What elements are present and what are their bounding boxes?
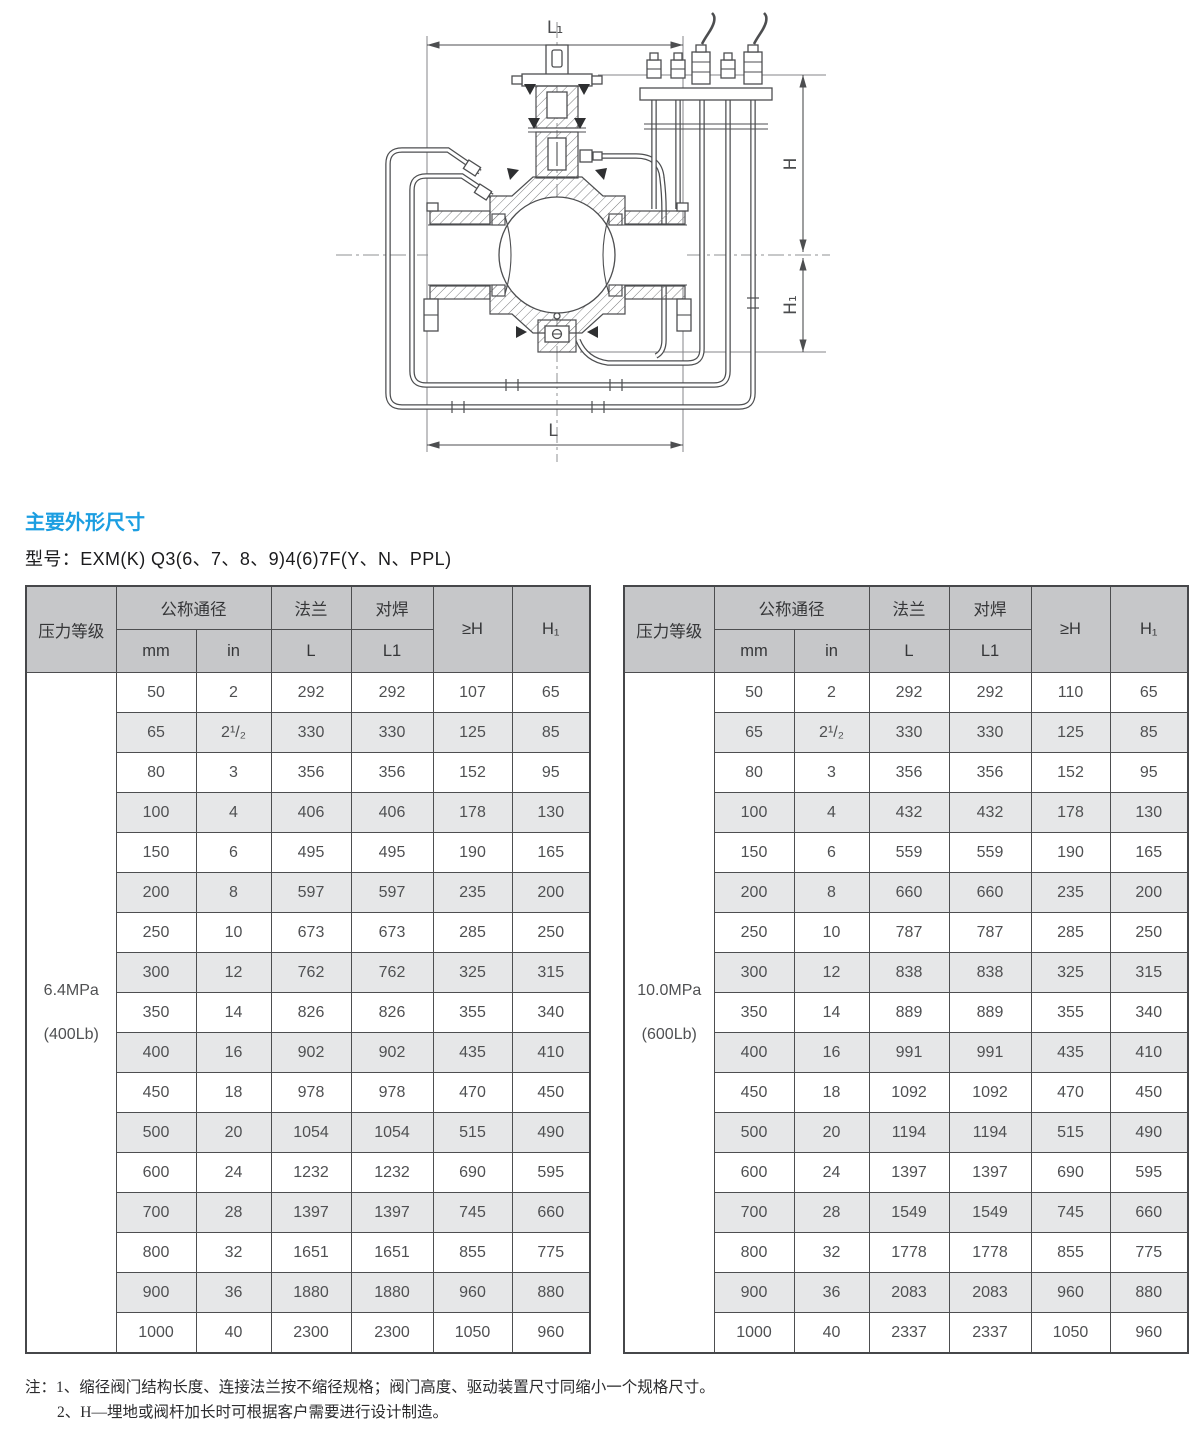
dimension-cell: 340	[512, 993, 590, 1033]
dimension-cell: 355	[433, 993, 512, 1033]
dimension-cell: 515	[433, 1113, 512, 1153]
dimension-cell: 32	[196, 1233, 271, 1273]
dimension-cell: 235	[1031, 873, 1110, 913]
dimension-cell: 450	[714, 1073, 794, 1113]
dimension-cell: 745	[433, 1193, 512, 1233]
dimension-cell: 2083	[869, 1273, 949, 1313]
dimension-cell: 889	[869, 993, 949, 1033]
dimension-cell: 315	[512, 953, 590, 993]
dimension-cell: 292	[869, 673, 949, 713]
dimension-cell: 900	[116, 1273, 196, 1313]
dimension-cell: 991	[869, 1033, 949, 1073]
dimension-cell: 20	[794, 1113, 869, 1153]
dimension-cell: 6	[794, 833, 869, 873]
dim-label-l: L	[548, 421, 558, 441]
valve-technical-drawing: L₁ L H H₁	[0, 0, 1200, 492]
dimension-cell: 600	[116, 1153, 196, 1193]
dimension-cell: 150	[714, 833, 794, 873]
dimension-cell: 2337	[949, 1313, 1031, 1354]
dimension-cell: 36	[794, 1273, 869, 1313]
dimension-cell: 515	[1031, 1113, 1110, 1153]
dimension-cell: 2083	[949, 1273, 1031, 1313]
dimension-cell: 65	[512, 673, 590, 713]
dimension-cell: 250	[714, 913, 794, 953]
header-butt-weld: 对焊	[351, 586, 433, 630]
dimension-cell: 660	[949, 873, 1031, 913]
dimension-cell: 356	[271, 753, 351, 793]
dimension-cell: 660	[1110, 1193, 1188, 1233]
dimension-cell: 500	[714, 1113, 794, 1153]
dimension-cell: 500	[116, 1113, 196, 1153]
dimension-cell: 787	[949, 913, 1031, 953]
dimension-cell: 200	[512, 873, 590, 913]
dimension-cell: 490	[512, 1113, 590, 1153]
catalog-page: L₁ L H H₁ 主要外形尺寸 型号：EXM(K) Q3(6、7、8、9)4(…	[0, 0, 1200, 1449]
dimension-cell: 470	[1031, 1073, 1110, 1113]
dimension-cell: 330	[351, 713, 433, 753]
dimension-cell: 125	[433, 713, 512, 753]
dimension-cell: 292	[351, 673, 433, 713]
table-row: 10.0MPa(600Lb)50229229211065	[624, 673, 1188, 713]
dimension-cell: 200	[714, 873, 794, 913]
dimension-cell: 745	[1031, 1193, 1110, 1233]
dimension-cell: 1651	[271, 1233, 351, 1273]
dimension-cell: 330	[869, 713, 949, 753]
dimension-cell: 1549	[949, 1193, 1031, 1233]
dimension-cell: 150	[116, 833, 196, 873]
dimension-cell: 40	[196, 1313, 271, 1354]
dimension-cell: 36	[196, 1273, 271, 1313]
dimension-cell: 125	[1031, 713, 1110, 753]
dimension-cell: 28	[794, 1193, 869, 1233]
dimension-cell: 100	[116, 793, 196, 833]
dimension-cell: 660	[869, 873, 949, 913]
dimension-cell: 1397	[869, 1153, 949, 1193]
dimension-cell: 85	[1110, 713, 1188, 753]
dimension-cell: 495	[351, 833, 433, 873]
dimension-cell: 100	[714, 793, 794, 833]
dimension-cell: 406	[351, 793, 433, 833]
header-l: L	[869, 630, 949, 673]
dimension-cell: 350	[116, 993, 196, 1033]
header-h1: H₁	[512, 586, 590, 673]
header-l1: L1	[351, 630, 433, 673]
header-in: in	[196, 630, 271, 673]
dimension-cell: 2	[196, 673, 271, 713]
dimension-cell: 130	[512, 793, 590, 833]
pressure-class-cell: 10.0MPa(600Lb)	[624, 673, 714, 1354]
dimension-cell: 4	[196, 793, 271, 833]
dimension-cell: 559	[949, 833, 1031, 873]
dimension-cell: 826	[271, 993, 351, 1033]
header-butt-weld: 对焊	[949, 586, 1031, 630]
header-h: ≥H	[1031, 586, 1110, 673]
dimension-cell: 16	[794, 1033, 869, 1073]
dimension-cell: 902	[351, 1033, 433, 1073]
dimension-cell: 410	[512, 1033, 590, 1073]
dimension-cell: 285	[1031, 913, 1110, 953]
dimension-cell: 165	[1110, 833, 1188, 873]
dimension-cell: 978	[271, 1073, 351, 1113]
dimension-cell: 1232	[271, 1153, 351, 1193]
dimension-cell: 20	[196, 1113, 271, 1153]
dimension-cell: 1092	[949, 1073, 1031, 1113]
pressure-class-cell: 6.4MPa(400Lb)	[26, 673, 116, 1354]
dimension-cell: 700	[714, 1193, 794, 1233]
model-line: 型号：EXM(K) Q3(6、7、8、9)4(6)7F(Y、N、PPL)	[25, 545, 1200, 571]
dimension-cell: 292	[271, 673, 351, 713]
page-title: 主要外形尺寸	[25, 506, 1200, 535]
dimension-cell: 495	[271, 833, 351, 873]
note-line-1: 注：1、缩径阀门结构长度、连接法兰按不缩径规格；阀门高度、驱动装置尺寸同缩小一个…	[25, 1376, 1200, 1401]
dimension-cell: 775	[512, 1233, 590, 1273]
dimension-cell: 1194	[869, 1113, 949, 1153]
dimension-cell: 18	[196, 1073, 271, 1113]
dimension-cell: 165	[512, 833, 590, 873]
dimension-cell: 292	[949, 673, 1031, 713]
header-pressure-class: 压力等级	[624, 586, 714, 673]
dimension-cell: 110	[1031, 673, 1110, 713]
dimension-cell: 80	[714, 753, 794, 793]
dimension-cell: 435	[433, 1033, 512, 1073]
header-nominal-diameter: 公称通径	[714, 586, 869, 630]
dimension-cell: 1549	[869, 1193, 949, 1233]
dimension-cell: 200	[116, 873, 196, 913]
dimension-cell: 315	[1110, 953, 1188, 993]
dimension-cell: 190	[433, 833, 512, 873]
dimension-cell: 690	[433, 1153, 512, 1193]
dimension-cell: 400	[116, 1033, 196, 1073]
dimension-cell: 200	[1110, 873, 1188, 913]
dimension-cell: 356	[351, 753, 433, 793]
header-pressure-class: 压力等级	[26, 586, 116, 673]
dimension-cell: 80	[116, 753, 196, 793]
header-flange: 法兰	[271, 586, 351, 630]
dimension-cell: 340	[1110, 993, 1188, 1033]
dimension-cell: 3	[196, 753, 271, 793]
dimension-cell: 450	[1110, 1073, 1188, 1113]
dimension-cell: 3	[794, 753, 869, 793]
dimension-cell: 95	[512, 753, 590, 793]
dimension-cell: 2	[794, 673, 869, 713]
dim-label-h1: H₁	[781, 295, 801, 315]
dimension-cell: 1054	[271, 1113, 351, 1153]
dimension-cell: 1092	[869, 1073, 949, 1113]
dimension-cell: 800	[116, 1233, 196, 1273]
dimension-cell: 410	[1110, 1033, 1188, 1073]
dimension-cell: 356	[869, 753, 949, 793]
dimension-cell: 1050	[433, 1313, 512, 1354]
dimension-cell: 800	[714, 1233, 794, 1273]
dimension-cell: 325	[433, 953, 512, 993]
dimension-cell: 330	[271, 713, 351, 753]
dimension-cell: 960	[433, 1273, 512, 1313]
dimension-cell: 450	[116, 1073, 196, 1113]
dimension-cell: 10	[196, 913, 271, 953]
dimension-cell: 95	[1110, 753, 1188, 793]
dimension-cell: 762	[351, 953, 433, 993]
dimension-cell: 960	[1110, 1313, 1188, 1354]
dimension-cell: 435	[1031, 1033, 1110, 1073]
dimension-cell: 356	[949, 753, 1031, 793]
dimension-cell: 12	[196, 953, 271, 993]
header-mm: mm	[714, 630, 794, 673]
dimension-cell: 597	[351, 873, 433, 913]
dimension-cell: 18	[794, 1073, 869, 1113]
dimension-cell: 300	[714, 953, 794, 993]
ball	[499, 197, 615, 313]
dimension-cell: 235	[433, 873, 512, 913]
dimension-tables: 压力等级 公称通径 法兰 对焊 ≥H H₁ mm in L L1 6.4MPa(…	[0, 585, 1200, 1354]
dimension-table-600lb: 压力等级 公称通径 法兰 对焊 ≥H H₁ mm in L L1 10.0MPa…	[623, 585, 1189, 1354]
dimension-cell: 597	[271, 873, 351, 913]
dimension-cell: 470	[433, 1073, 512, 1113]
dimension-cell: 107	[433, 673, 512, 713]
dimension-cell: 12	[794, 953, 869, 993]
tube-fitting	[647, 53, 735, 78]
dimension-cell: 855	[1031, 1233, 1110, 1273]
dimension-cell: 880	[1110, 1273, 1188, 1313]
dimension-cell: 1397	[949, 1153, 1031, 1193]
dimension-cell: 787	[869, 913, 949, 953]
valve-body	[424, 177, 691, 352]
dimension-cell: 1232	[351, 1153, 433, 1193]
dimension-cell: 1054	[351, 1113, 433, 1153]
dimension-cell: 690	[1031, 1153, 1110, 1193]
dimension-table-400lb: 压力等级 公称通径 法兰 对焊 ≥H H₁ mm in L L1 6.4MPa(…	[25, 585, 591, 1354]
dimension-cell: 1651	[351, 1233, 433, 1273]
dimension-cell: 178	[433, 793, 512, 833]
dimension-cell: 250	[1110, 913, 1188, 953]
dimension-cell: 14	[794, 993, 869, 1033]
dimension-cell: 24	[196, 1153, 271, 1193]
header-nominal-diameter: 公称通径	[116, 586, 271, 630]
dimension-cell: 8	[794, 873, 869, 913]
dimension-cell: 432	[869, 793, 949, 833]
dimension-cell: 1397	[271, 1193, 351, 1233]
dimension-cell: 673	[351, 913, 433, 953]
dimension-cell: 600	[714, 1153, 794, 1193]
dimension-cell: 16	[196, 1033, 271, 1073]
note-line-2: 2、H—埋地或阀杆加长时可根据客户需要进行设计制造。	[25, 1401, 1200, 1426]
dimension-cell: 130	[1110, 793, 1188, 833]
dimension-cell: 900	[714, 1273, 794, 1313]
dimension-cell: 355	[1031, 993, 1110, 1033]
dimension-cell: 65	[116, 713, 196, 753]
dimension-cell: 1880	[351, 1273, 433, 1313]
dimension-cell: 432	[949, 793, 1031, 833]
dimension-cell: 595	[512, 1153, 590, 1193]
header-h1: H₁	[1110, 586, 1188, 673]
dimension-cell: 190	[1031, 833, 1110, 873]
dimension-cell: 673	[271, 913, 351, 953]
dimension-cell: 889	[949, 993, 1031, 1033]
dimension-cell: 350	[714, 993, 794, 1033]
header-l1: L1	[949, 630, 1031, 673]
dimension-cell: 178	[1031, 793, 1110, 833]
dimension-cell: 285	[433, 913, 512, 953]
dimension-cell: 1397	[351, 1193, 433, 1233]
table-row: 6.4MPa(400Lb)50229229210765	[26, 673, 590, 713]
dimension-cell: 40	[794, 1313, 869, 1354]
dimension-cell: 325	[1031, 953, 1110, 993]
dimension-cell: 250	[116, 913, 196, 953]
dimension-cell: 406	[271, 793, 351, 833]
dimension-cell: 50	[116, 673, 196, 713]
note-prefix: 注：	[25, 1379, 56, 1396]
dimension-cell: 4	[794, 793, 869, 833]
dimension-cell: 595	[1110, 1153, 1188, 1193]
dimension-cell: 2337	[869, 1313, 949, 1354]
dimension-cell: 14	[196, 993, 271, 1033]
header-flange: 法兰	[869, 586, 949, 630]
dimension-cell: 65	[1110, 673, 1188, 713]
dimension-cell: 24	[794, 1153, 869, 1193]
dimension-cell: 152	[433, 753, 512, 793]
dimension-cell: 762	[271, 953, 351, 993]
dimension-cell: 65	[714, 713, 794, 753]
dimension-cell: 826	[351, 993, 433, 1033]
dimension-cell: 250	[512, 913, 590, 953]
dimension-cell: 400	[714, 1033, 794, 1073]
dimension-cell: 2¹/₂	[196, 713, 271, 753]
header-h: ≥H	[433, 586, 512, 673]
dimension-cell: 1194	[949, 1113, 1031, 1153]
dimension-cell: 85	[512, 713, 590, 753]
dimension-cell: 1880	[271, 1273, 351, 1313]
dimension-cell: 700	[116, 1193, 196, 1233]
dimension-cell: 32	[794, 1233, 869, 1273]
dimension-cell: 8	[196, 873, 271, 913]
dim-label-h: H	[781, 158, 801, 171]
dimension-cell: 450	[512, 1073, 590, 1113]
footnotes: 注：1、缩径阀门结构长度、连接法兰按不缩径规格；阀门高度、驱动装置尺寸同缩小一个…	[25, 1376, 1200, 1426]
dimension-cell: 6	[196, 833, 271, 873]
dimension-cell: 2300	[351, 1313, 433, 1354]
dimension-cell: 2¹/₂	[794, 713, 869, 753]
header-l: L	[271, 630, 351, 673]
dimension-cell: 1000	[116, 1313, 196, 1354]
dimension-cell: 838	[949, 953, 1031, 993]
dimension-cell: 152	[1031, 753, 1110, 793]
dimension-cell: 1778	[869, 1233, 949, 1273]
dimension-cell: 991	[949, 1033, 1031, 1073]
dimension-cell: 855	[433, 1233, 512, 1273]
dimension-cell: 490	[1110, 1113, 1188, 1153]
header-in: in	[794, 630, 869, 673]
dimension-cell: 880	[512, 1273, 590, 1313]
dimension-cell: 838	[869, 953, 949, 993]
dimension-cell: 978	[351, 1073, 433, 1113]
dimension-cell: 330	[949, 713, 1031, 753]
tube-union	[452, 298, 759, 413]
dimension-cell: 775	[1110, 1233, 1188, 1273]
dimension-cell: 960	[512, 1313, 590, 1354]
dimension-cell: 559	[869, 833, 949, 873]
dimension-cell: 902	[271, 1033, 351, 1073]
dimension-cell: 10	[794, 913, 869, 953]
dimension-cell: 300	[116, 953, 196, 993]
dim-label-l1: L₁	[547, 18, 563, 38]
dimension-cell: 660	[512, 1193, 590, 1233]
dimension-cell: 1050	[1031, 1313, 1110, 1354]
dimension-cell: 960	[1031, 1273, 1110, 1313]
dimension-cell: 2300	[271, 1313, 351, 1354]
dimension-cell: 50	[714, 673, 794, 713]
dimension-cell: 28	[196, 1193, 271, 1233]
dimension-cell: 1000	[714, 1313, 794, 1354]
header-mm: mm	[116, 630, 196, 673]
dimension-cell: 1778	[949, 1233, 1031, 1273]
